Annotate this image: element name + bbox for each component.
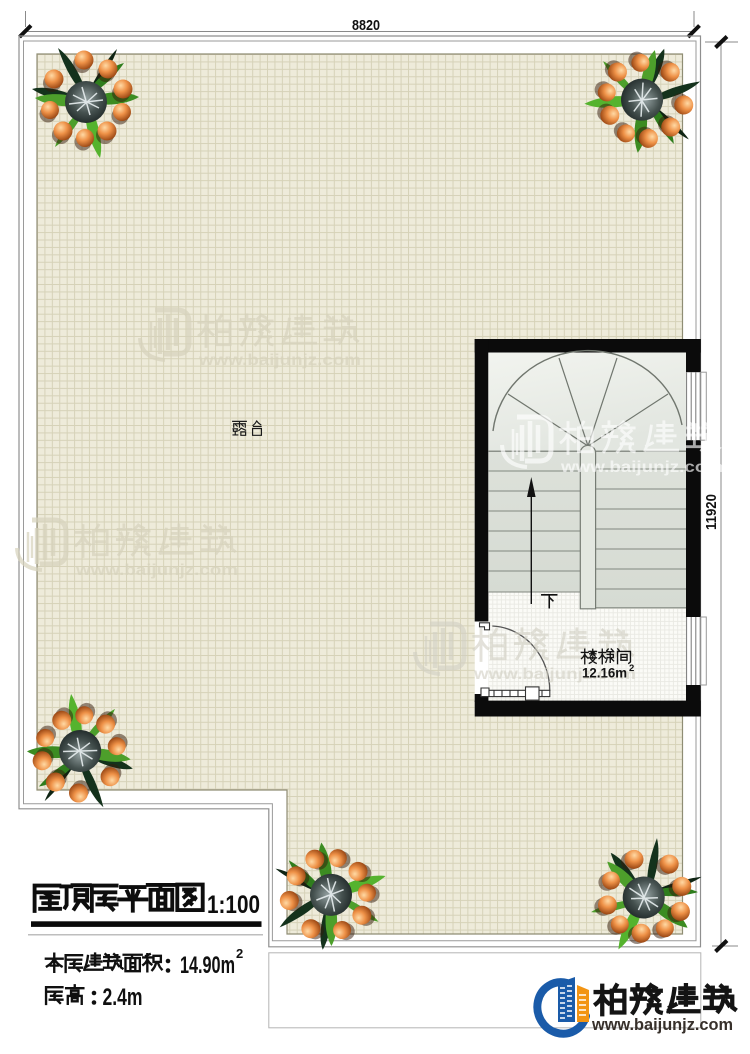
svg-text:www.baijunjz.com: www.baijunjz.com [591,1016,733,1034]
svg-text:14.90m: 14.90m [180,952,235,979]
svg-text:11920: 11920 [704,494,720,530]
svg-text:1:100: 1:100 [207,891,260,919]
svg-text:2: 2 [236,946,243,961]
svg-text:12.16m: 12.16m [582,665,627,681]
svg-text:8820: 8820 [352,18,380,34]
svg-text:2: 2 [629,663,634,674]
svg-text:2.4m: 2.4m [103,984,143,1011]
